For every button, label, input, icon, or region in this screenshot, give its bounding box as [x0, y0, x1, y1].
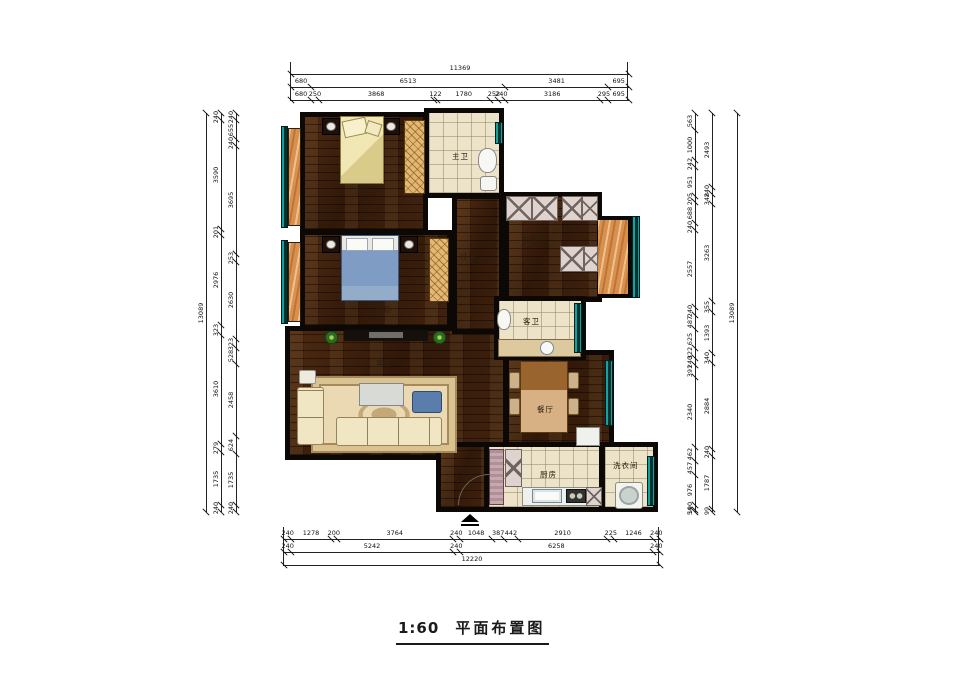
dimension-value: 1780	[455, 91, 472, 98]
dimension-value: 976	[687, 484, 694, 496]
nightstand	[322, 236, 340, 253]
plant	[323, 329, 340, 346]
toilet	[478, 148, 497, 173]
balcony-upper	[288, 128, 301, 226]
room-label-guest-bath: 客卫	[523, 318, 540, 326]
dimension-line	[737, 113, 738, 512]
chair	[568, 398, 579, 415]
dimension-value: 1393	[704, 324, 711, 341]
nightstand	[400, 236, 418, 253]
dimension-strip-bottom: 2401278200376424010483874422910225124624…	[283, 527, 659, 566]
dimension-line	[284, 539, 660, 540]
dimension-line	[291, 87, 629, 88]
sink-round	[540, 341, 554, 355]
room-label-living-room: 客厅	[376, 360, 393, 368]
cab-x	[586, 487, 602, 506]
plant	[431, 329, 448, 346]
table-dining	[520, 361, 568, 433]
dimension-value: 1000	[687, 137, 694, 154]
dimension-value: 387	[492, 530, 504, 537]
blue-chair	[412, 391, 442, 413]
dimension-value: 323	[213, 324, 220, 336]
chair	[509, 372, 520, 389]
dimension-line	[284, 565, 660, 566]
cab-x	[506, 196, 532, 221]
window-strip	[281, 126, 288, 228]
dimension-value: 122	[429, 91, 441, 98]
drawing-title: 1:60平面布置图	[396, 617, 549, 645]
chair	[509, 398, 520, 415]
window-strip	[495, 122, 503, 144]
bed-h	[341, 235, 399, 301]
dimension-value: 3868	[368, 91, 385, 98]
floorplan-drawing: 客厅餐厅过道主卧客卧衣帽间主卫客卫玄关厨房洗衣间1136968065133481…	[0, 0, 962, 680]
window-strip	[574, 303, 582, 353]
drawing-scale: 1:60	[398, 619, 439, 637]
cab-stripe	[489, 449, 504, 505]
dimension-value: 340	[704, 352, 711, 364]
dimension-value: 6258	[548, 543, 565, 550]
washer	[615, 482, 643, 509]
tv-cab	[344, 330, 428, 341]
cab-x	[584, 246, 598, 272]
dimension-value: 5242	[364, 543, 381, 550]
sideboard	[576, 427, 600, 446]
room-label-cloakroom: 衣帽间	[521, 236, 547, 244]
dimension-value: 12220	[462, 556, 483, 563]
dimension-line	[206, 113, 207, 512]
dimension-value: 2976	[213, 272, 220, 289]
dimension-value: 13089	[729, 302, 736, 323]
balcony-lower	[288, 242, 301, 322]
chair	[568, 372, 579, 389]
dimension-value: 2340	[687, 404, 694, 421]
dimension-value: 348	[704, 193, 711, 205]
nightstand	[322, 118, 340, 135]
dimension-line	[284, 552, 660, 553]
dimension-value: 1735	[228, 471, 235, 488]
dimension-value: 3610	[213, 381, 220, 398]
dimension-value: 1787	[704, 474, 711, 491]
dimension-value: 3186	[544, 91, 561, 98]
stove	[566, 489, 586, 503]
room-label-corridor: 过道	[460, 253, 477, 261]
dimension-line	[291, 100, 629, 101]
bay-window	[598, 216, 632, 298]
dimension-strip-right-col1: 2493240348326335513933402884240178799	[700, 113, 724, 512]
dimension-value: 680	[295, 91, 307, 98]
dimension-value: 2493	[704, 142, 711, 159]
cab-x	[582, 196, 598, 221]
cab-x	[505, 449, 522, 487]
dimension-line	[695, 113, 696, 512]
sofa-v	[297, 387, 324, 445]
dimension-value: 3481	[548, 78, 565, 85]
dimension-value: 680	[295, 78, 307, 85]
entrance-marker-arrow	[461, 514, 479, 522]
floorplan-canvas: 客厅餐厅过道主卧客卧衣帽间主卫客卫玄关厨房洗衣间1136968065133481…	[0, 0, 962, 680]
window-strip	[632, 216, 640, 298]
room-label-guest-bedroom: 客卧	[376, 306, 393, 314]
dimension-value: 6513	[400, 78, 417, 85]
dimension-value: 3695	[228, 192, 235, 209]
dimension-value: 3263	[704, 245, 711, 262]
room-label-master-bedroom: 主卧	[355, 187, 372, 195]
dimension-value: 655	[228, 123, 235, 135]
wardrobe	[429, 238, 449, 302]
dimension-value: 1048	[468, 530, 485, 537]
dimension-value: 688	[687, 206, 694, 218]
cab-x	[562, 196, 582, 221]
dimension-value: 3764	[386, 530, 403, 537]
toilet	[497, 309, 511, 330]
sink-sq	[480, 176, 497, 191]
coffee-table	[359, 383, 404, 406]
dimension-value: 3590	[213, 166, 220, 183]
dimension-value: 695	[612, 78, 624, 85]
wardrobe	[404, 120, 425, 194]
dimension-value: 2458	[228, 392, 235, 409]
dimension-strip-top: 1136968065133481695680250386812217802522…	[290, 62, 628, 101]
dimension-value: 11369	[450, 65, 471, 72]
dimension-value: 951	[687, 176, 694, 188]
dimension-strip-right-col2: 13089	[725, 113, 749, 512]
bed-v	[340, 116, 384, 184]
room-label-kitchen: 厨房	[540, 471, 557, 479]
drawing-title-text: 平面布置图	[455, 619, 545, 637]
dimension-strip-left-col2: 2406552403695253263032352824586241735240	[224, 113, 248, 512]
dimension-value: 1246	[625, 530, 642, 537]
cab-x	[560, 246, 584, 272]
room-label-dining-room: 餐厅	[537, 406, 554, 414]
window-strip	[647, 456, 655, 506]
room-label-laundry: 洗衣间	[613, 462, 639, 470]
dimension-value: 13089	[198, 302, 205, 323]
dimension-value: 695	[612, 91, 624, 98]
dimension-value: 624	[228, 439, 235, 451]
room-label-entry: 玄关	[459, 466, 476, 474]
dimension-line	[236, 113, 237, 512]
dimension-value: 625	[687, 333, 694, 345]
entrance-marker-bar	[461, 524, 479, 526]
dimension-value: 2910	[554, 530, 571, 537]
dimension-line	[291, 74, 629, 75]
room-label-master-bath: 主卫	[452, 153, 469, 161]
dimension-value: 1278	[303, 530, 320, 537]
side-table	[299, 370, 316, 384]
dimension-value: 2557	[687, 261, 694, 278]
dimension-value: 2630	[228, 292, 235, 309]
window-strip	[605, 360, 613, 426]
window-strip	[281, 240, 288, 324]
sink	[532, 489, 562, 503]
dimension-value: 1735	[213, 470, 220, 487]
nightstand	[382, 118, 400, 135]
sofa	[336, 417, 442, 446]
dimension-value: 2884	[704, 398, 711, 415]
cab-x	[532, 196, 558, 221]
